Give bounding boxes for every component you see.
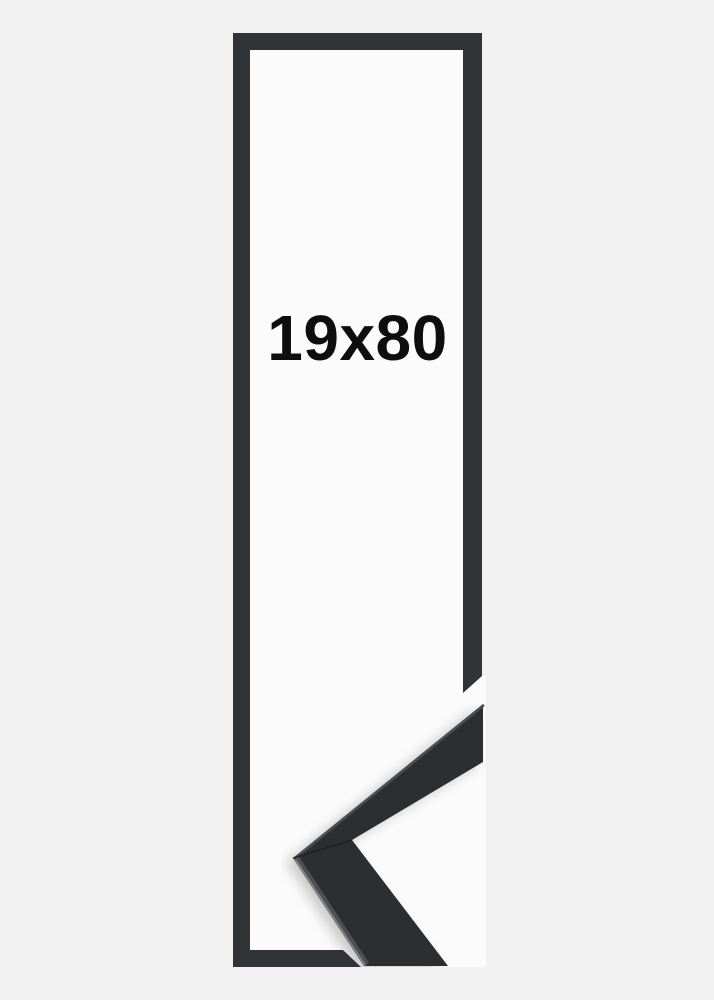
product-image-canvas: 19x80 [0, 0, 714, 1000]
size-label: 19x80 [233, 296, 482, 380]
frame-product-graphic [0, 0, 714, 1000]
